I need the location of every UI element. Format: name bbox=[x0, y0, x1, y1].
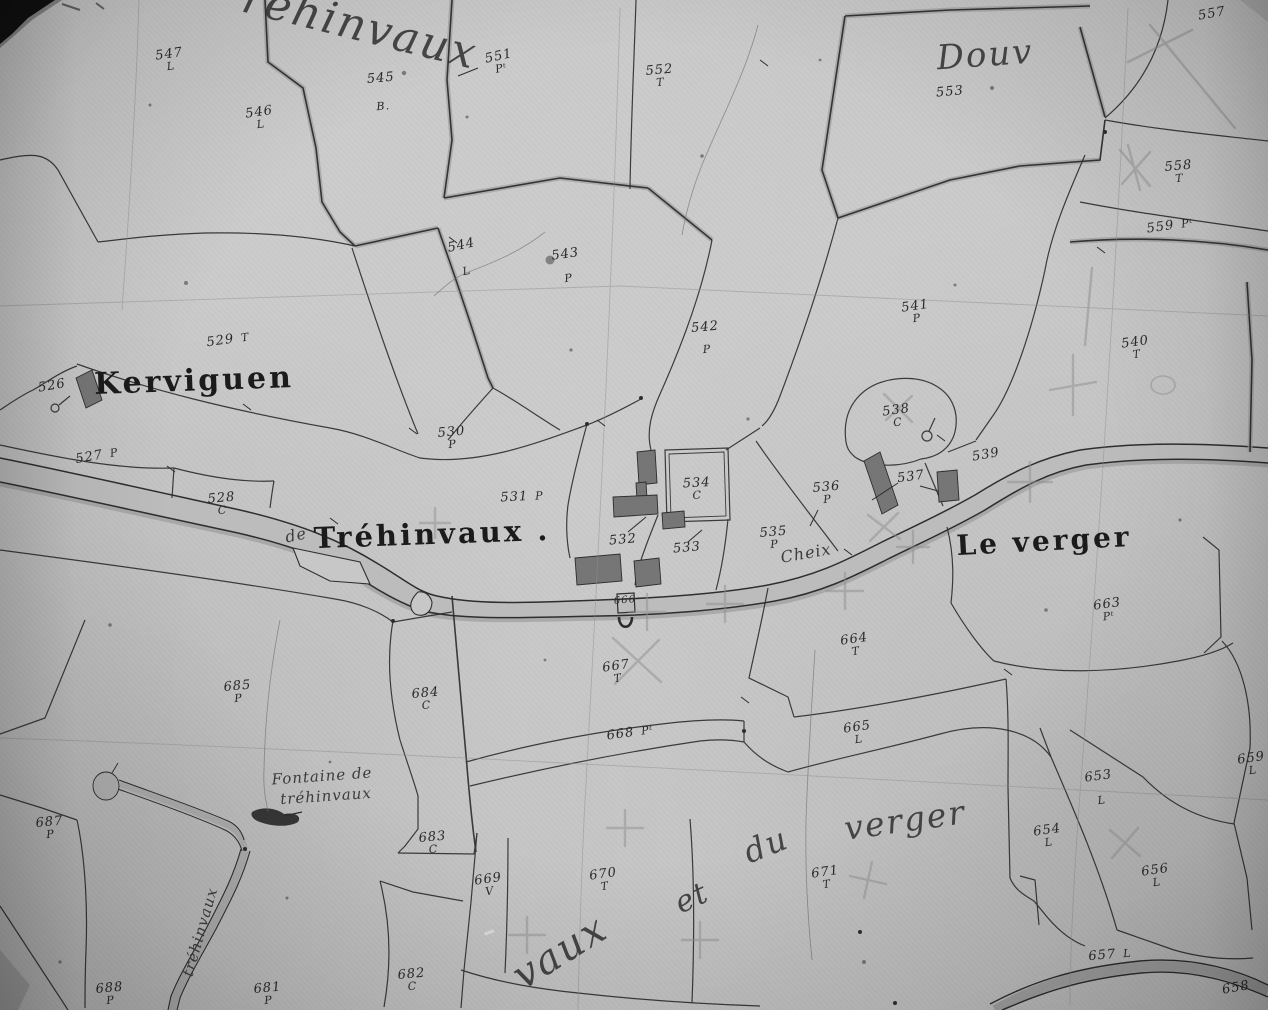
parcel-number: 553 bbox=[936, 84, 965, 100]
parcel-label-682: 682C bbox=[397, 967, 427, 994]
parcel-class-letter: Pᵗ bbox=[640, 723, 654, 738]
parcel-label-540: 540T bbox=[1121, 334, 1152, 362]
parcel-label-546: 546L bbox=[245, 104, 276, 132]
parcel-label-541: 541P bbox=[901, 298, 932, 326]
parcel-number: 666 bbox=[614, 595, 637, 607]
parcel-label-657: 657L bbox=[1088, 947, 1132, 964]
parcel-label-687: 687P bbox=[35, 815, 65, 842]
map-labels: 547L546L545B.551Pᵗ552T553557558T559Pᵗ544… bbox=[0, 0, 1268, 1010]
parcel-label-664: 664T bbox=[840, 631, 871, 659]
parcel-class-letter: L bbox=[1087, 793, 1116, 808]
parcel-label-653: 653L bbox=[1084, 768, 1117, 808]
parcel-class-letter: P bbox=[554, 271, 583, 286]
parcel-label-542: 542P bbox=[691, 320, 722, 357]
parcel-label-538: 538C bbox=[882, 402, 913, 430]
parcel-label-536: 536P bbox=[812, 480, 842, 507]
parcel-number: 531 bbox=[500, 489, 529, 505]
parcel-class-letter: B. bbox=[369, 100, 398, 114]
parcel-label-547: 547L bbox=[155, 46, 186, 74]
place-label: de bbox=[283, 523, 308, 546]
parcel-label-553: 553 bbox=[936, 84, 965, 100]
parcel-number: 544 bbox=[446, 236, 476, 255]
parcel-label-528: 528C bbox=[207, 491, 237, 518]
parcel-class-letter: Pᵗ bbox=[1180, 216, 1194, 231]
parcel-label-671: 671T bbox=[811, 864, 842, 892]
parcel-label-666: 666 bbox=[614, 595, 637, 607]
parcel-number: 532 bbox=[609, 532, 638, 548]
parcel-label-532: 532 bbox=[609, 532, 638, 548]
place-label: et bbox=[669, 875, 714, 921]
parcel-label-663: 663Pᵗ bbox=[1093, 596, 1124, 624]
parcel-label-659: 659L bbox=[1237, 750, 1268, 778]
place-label: réhinvaux bbox=[237, 0, 482, 80]
parcel-number: 653 bbox=[1084, 768, 1113, 785]
place-label: tréhinvaux bbox=[179, 885, 222, 978]
place-label: vaux bbox=[504, 905, 616, 998]
parcel-number: 526 bbox=[37, 377, 67, 395]
parcel-label-527: 527P bbox=[75, 446, 120, 467]
parcel-label-669: 669V bbox=[474, 871, 505, 899]
parcel-number: 539 bbox=[971, 446, 1001, 464]
parcel-class-letter: P bbox=[109, 446, 120, 460]
parcel-number: 527 bbox=[74, 447, 104, 467]
parcel-label-668: 668Pᵗ bbox=[606, 723, 654, 743]
parcel-label-552: 552T bbox=[645, 63, 675, 90]
place-label: Tréhinvaux . bbox=[313, 513, 551, 555]
parcel-number: 545 bbox=[366, 71, 395, 87]
parcel-number: 543 bbox=[551, 246, 580, 263]
place-label: Douv bbox=[935, 32, 1034, 79]
parcel-label-545: 545B. bbox=[366, 71, 397, 114]
parcel-number: 658 bbox=[1221, 979, 1251, 997]
place-label: verger bbox=[842, 792, 969, 848]
cadastral-map-scan: 547L546L545B.551Pᵗ552T553557558T559Pᵗ544… bbox=[0, 0, 1268, 1010]
parcel-number: 542 bbox=[691, 320, 720, 336]
parcel-label-665: 665L bbox=[843, 719, 874, 747]
parcel-class-letter: L bbox=[1123, 947, 1132, 961]
parcel-label-559: 559Pᵗ bbox=[1146, 216, 1194, 236]
parcel-number: 557 bbox=[1197, 5, 1227, 23]
parcel-label-534: 534C bbox=[682, 476, 711, 502]
parcel-number: 657 bbox=[1088, 947, 1117, 964]
parcel-label-658: 658 bbox=[1221, 979, 1251, 997]
parcel-label-539: 539 bbox=[971, 446, 1001, 464]
parcel-label-551: 551Pᵗ bbox=[484, 47, 516, 77]
parcel-label-656: 656L bbox=[1141, 862, 1172, 890]
parcel-label-688: 688P bbox=[95, 981, 125, 1008]
parcel-number: 559 bbox=[1146, 218, 1176, 237]
parcel-label-533: 533 bbox=[673, 540, 702, 556]
parcel-label-670: 670T bbox=[589, 866, 620, 894]
parcel-number: 529 bbox=[206, 332, 236, 351]
parcel-class-letter: P bbox=[693, 343, 722, 357]
parcel-label-667: 667T bbox=[602, 658, 633, 686]
parcel-label-530: 530P bbox=[437, 425, 467, 452]
place-label: Le verger bbox=[956, 520, 1133, 562]
parcel-label-531: 531P bbox=[500, 489, 544, 504]
parcel-label-537: 537 bbox=[896, 469, 925, 486]
place-label: du bbox=[738, 819, 794, 871]
parcel-label-543: 543P bbox=[551, 246, 584, 286]
parcel-label-526: 526 bbox=[37, 377, 67, 395]
place-label: Kerviguen bbox=[94, 360, 295, 402]
place-label: tréhinvaux bbox=[280, 784, 373, 808]
parcel-class-letter: P bbox=[535, 489, 544, 502]
parcel-label-681: 681P bbox=[253, 981, 283, 1008]
parcel-label-558: 558T bbox=[1164, 159, 1194, 186]
parcel-class-letter: L bbox=[452, 263, 482, 280]
parcel-label-557: 557 bbox=[1197, 5, 1227, 23]
parcel-label-684: 684C bbox=[411, 686, 441, 713]
parcel-class-letter: T bbox=[240, 330, 250, 344]
parcel-label-683: 683C bbox=[418, 830, 448, 857]
parcel-number: 537 bbox=[896, 469, 925, 486]
parcel-number: 668 bbox=[606, 725, 636, 744]
parcel-label-654: 654L bbox=[1033, 822, 1064, 850]
parcel-label-544: 544L bbox=[446, 236, 481, 279]
parcel-number: 533 bbox=[673, 540, 702, 556]
parcel-label-685: 685P bbox=[223, 679, 253, 706]
parcel-label-529: 529T bbox=[206, 330, 251, 349]
